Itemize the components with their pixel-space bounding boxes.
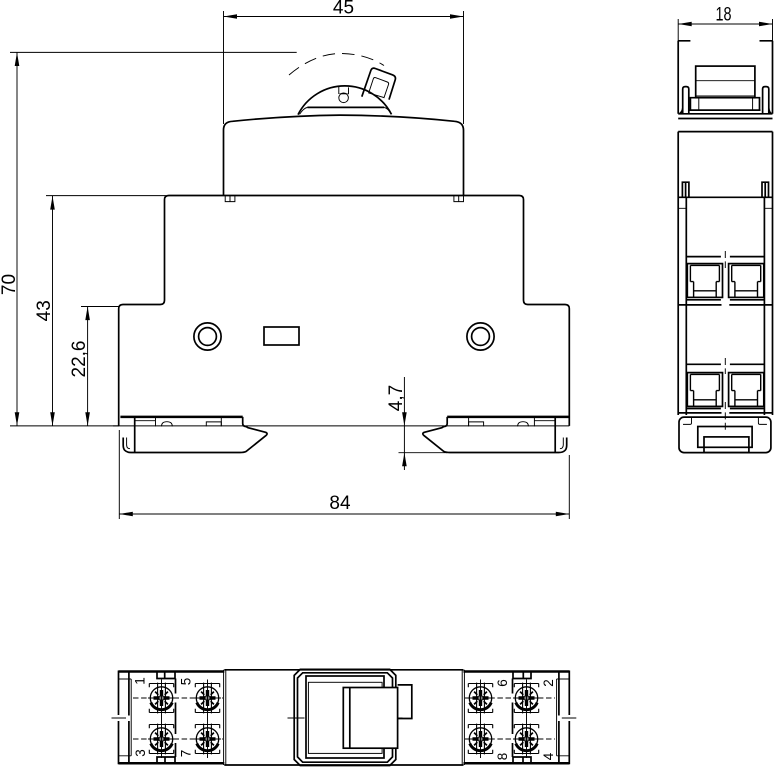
svg-text:4: 4 (541, 752, 556, 760)
svg-text:7: 7 (179, 750, 194, 758)
svg-text:8: 8 (495, 753, 510, 761)
svg-text:84: 84 (329, 493, 351, 514)
svg-text:5: 5 (179, 678, 194, 686)
svg-text:43: 43 (34, 300, 55, 321)
svg-text:4,7: 4,7 (386, 385, 407, 411)
svg-text:18: 18 (716, 5, 732, 26)
svg-text:2: 2 (541, 679, 556, 687)
svg-text:45: 45 (333, 0, 354, 19)
svg-text:22,6: 22,6 (69, 341, 90, 378)
svg-text:6: 6 (495, 679, 510, 687)
svg-text:3: 3 (133, 749, 148, 757)
svg-text:1: 1 (132, 677, 147, 685)
